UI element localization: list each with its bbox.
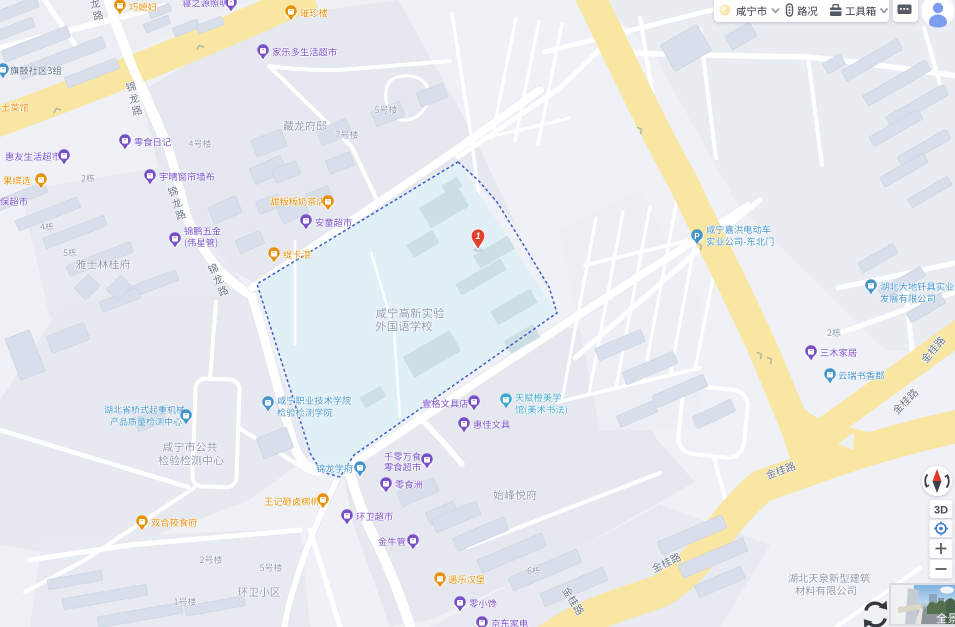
svg-text:3D: 3D xyxy=(934,505,948,517)
svg-text:P: P xyxy=(694,232,700,241)
svg-text:1: 1 xyxy=(475,231,480,241)
